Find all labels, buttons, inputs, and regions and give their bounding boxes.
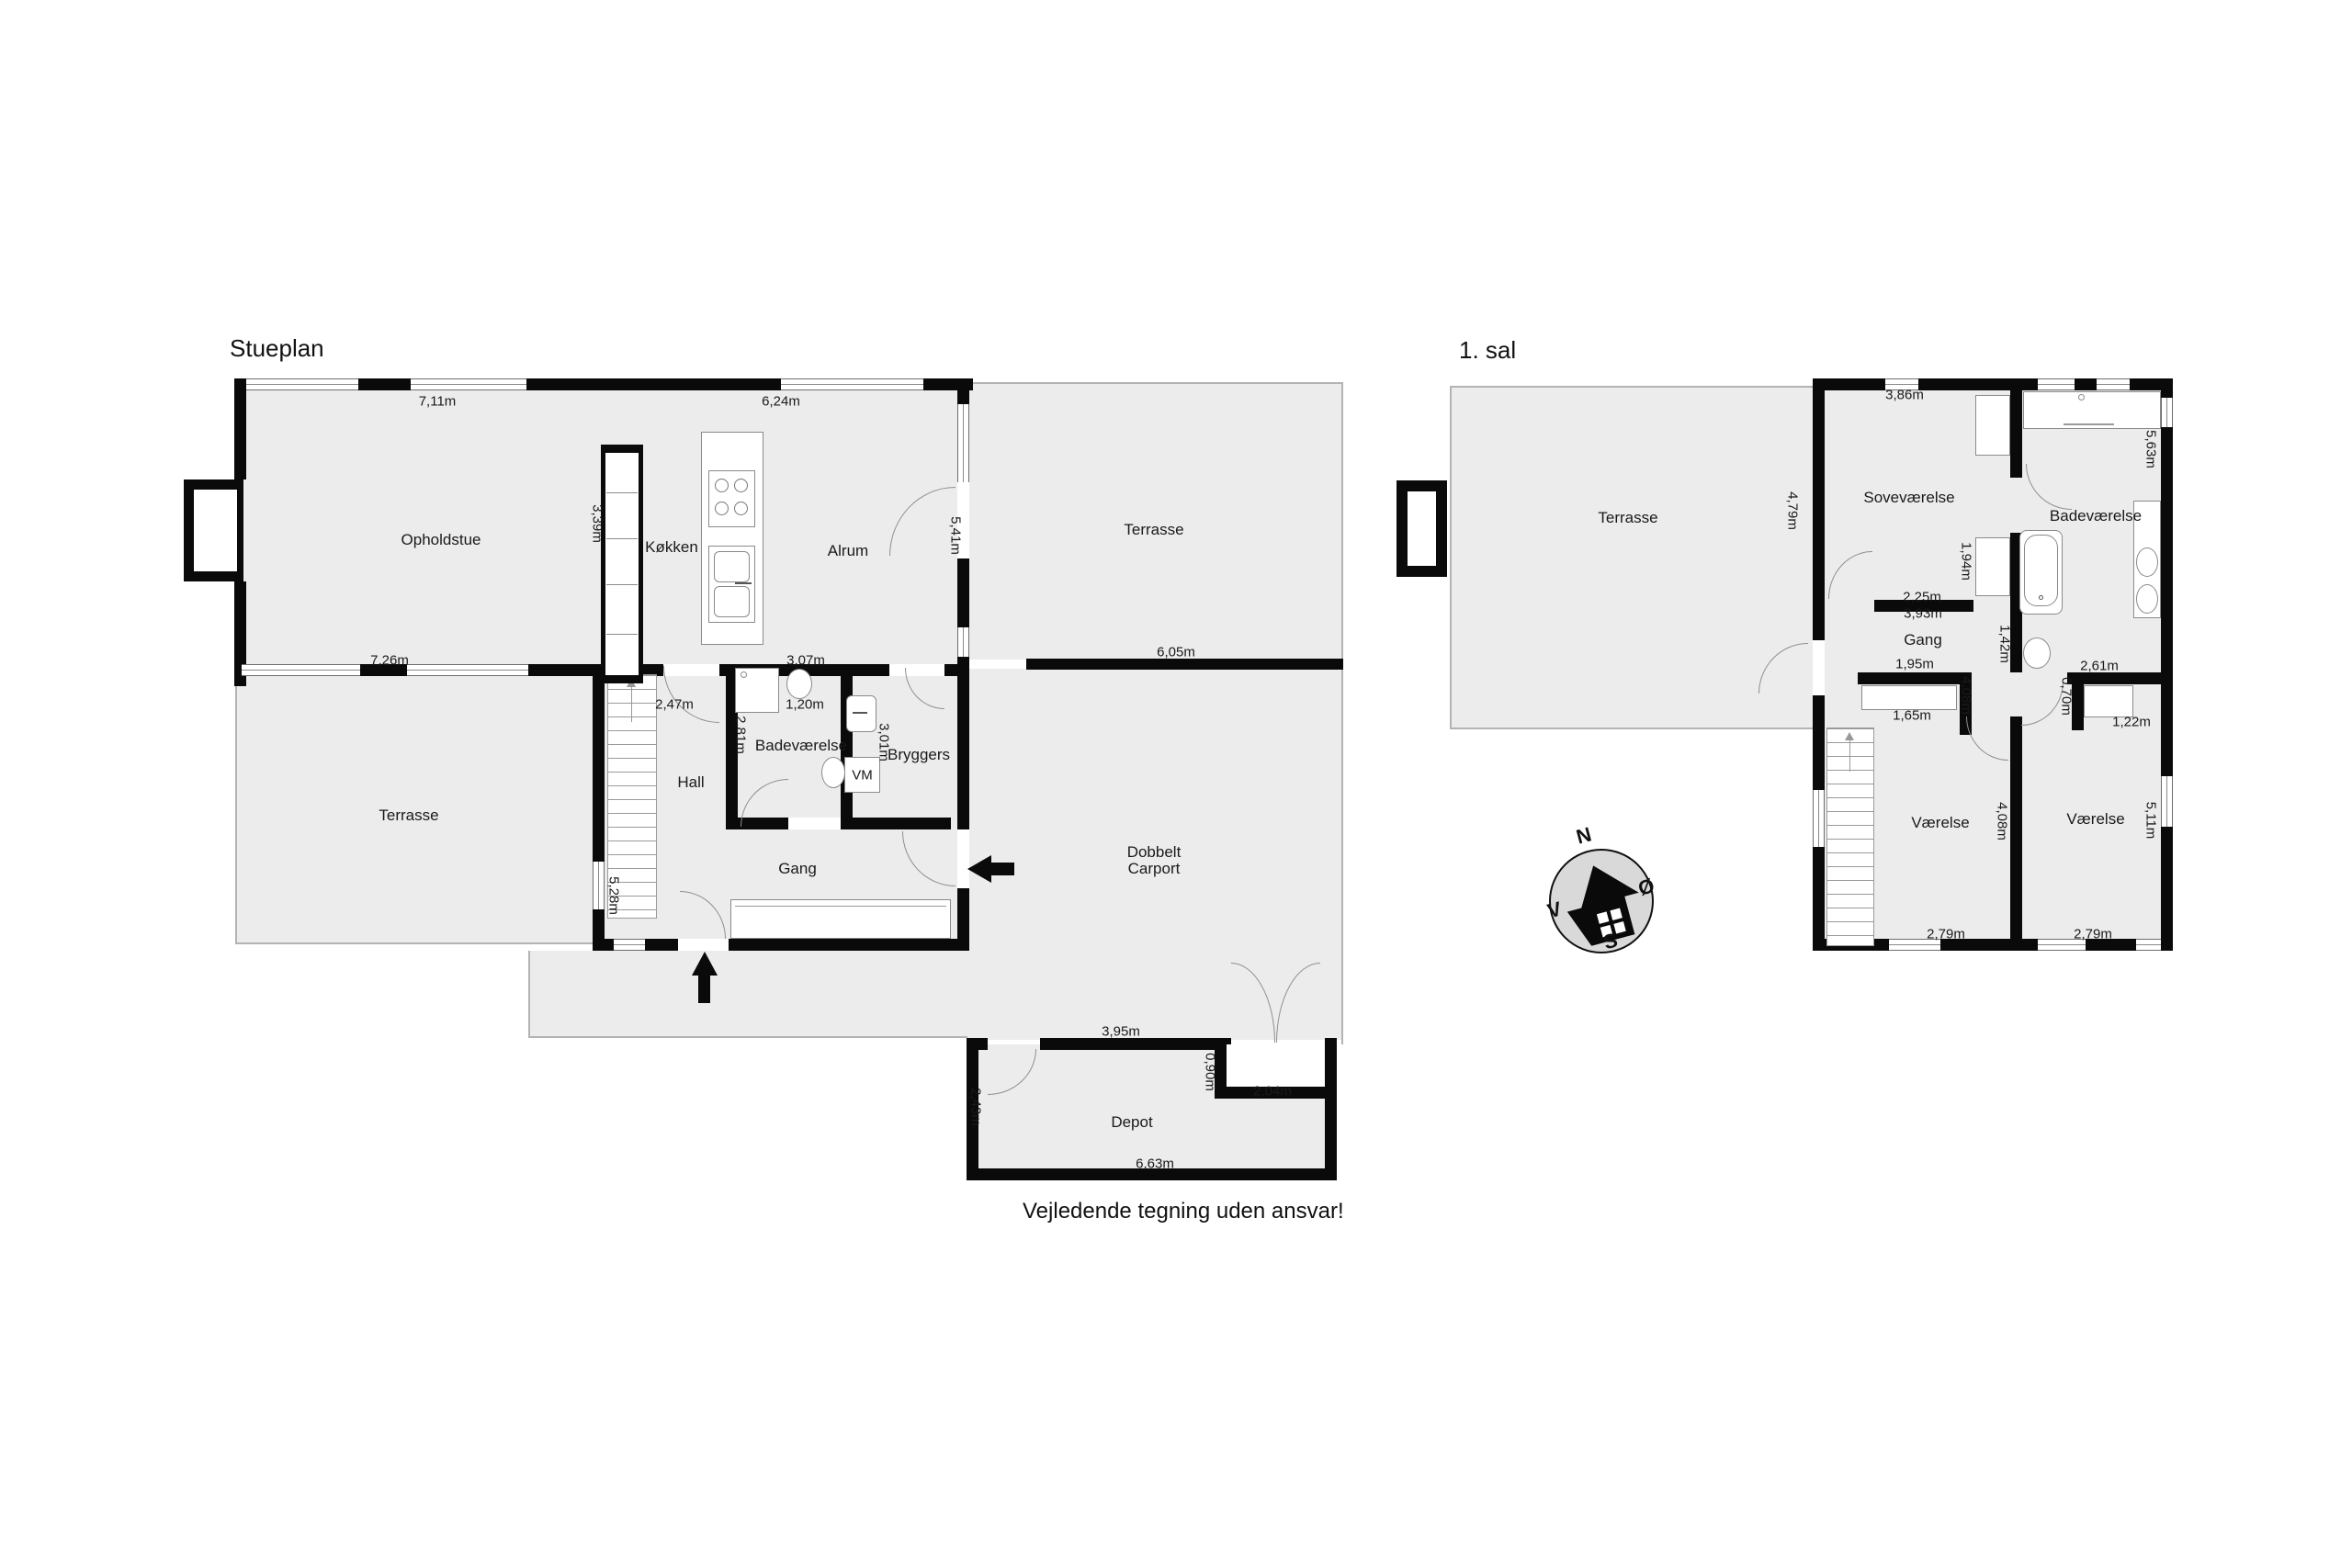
hob-burner	[715, 479, 729, 492]
wardrobe-line	[735, 906, 946, 907]
room-label-badevaerelse-1sal: Badeværelse	[2050, 507, 2142, 525]
hob-burner	[734, 502, 748, 515]
utility-sink	[846, 695, 876, 732]
room-fill-terrasse-1sal	[1450, 386, 1814, 729]
measurement-label: 0,90m	[1203, 1053, 1218, 1091]
room-label-kokken: Køkken	[645, 538, 698, 557]
measurement-label: 1,20m	[786, 697, 824, 713]
measurement-label: 4,08m	[1959, 676, 1974, 715]
room-label-bryggers: Bryggers	[888, 746, 950, 764]
bathtub-drain	[2039, 595, 2043, 600]
shower-screen-line	[2064, 423, 2114, 425]
terrasse-1sal-bottom-edge	[1450, 728, 1814, 729]
measurement-label: 6,24m	[762, 394, 800, 410]
wall-segment	[1858, 672, 1960, 684]
compass-house-window	[1610, 908, 1622, 920]
cabinet-shelf-line	[606, 584, 638, 585]
measurement-label: 3,07m	[786, 653, 825, 669]
shower-head-icon	[2078, 394, 2085, 400]
stueplan-title: Stueplan	[230, 334, 324, 363]
wall-segment	[234, 378, 246, 479]
measurement-label: 3,39m	[590, 504, 605, 543]
measurement-label: 4,08m	[1995, 802, 2010, 840]
room-label-carport-2: Carport	[1128, 860, 1181, 878]
terrasse-1sal-left-edge	[1450, 386, 1452, 729]
terrasse-left-edge	[235, 675, 237, 944]
measurement-label: 1,94m	[1959, 542, 1974, 581]
cabinet-shelf-line	[606, 634, 638, 635]
kitchen-tall-cabinet	[601, 445, 643, 683]
depot-niche	[1227, 1044, 1325, 1087]
cabinet-shelf-line	[606, 492, 638, 493]
sink	[2136, 584, 2158, 614]
window	[2038, 378, 2075, 390]
stairs	[1826, 728, 1874, 946]
window	[2161, 398, 2173, 427]
disclaimer-text: Vejledende tegning uden ansvar!	[1023, 1199, 1344, 1224]
room-label-terrasse-1sal: Terrasse	[1598, 509, 1657, 527]
sink	[2136, 547, 2158, 577]
window	[593, 862, 605, 909]
room-label-vaerelse-right: Værelse	[2066, 810, 2124, 829]
floorplan-canvas: Stueplan 1. sal	[0, 0, 2352, 1568]
hob-burner	[734, 479, 748, 492]
window	[781, 378, 923, 390]
first-floor-title: 1. sal	[1459, 336, 1516, 365]
measurement-label: 3,01m	[876, 723, 892, 761]
entrance-arrow-icon	[692, 952, 718, 976]
faucet-icon	[735, 582, 752, 584]
stairs-direction-line	[1849, 740, 1850, 772]
measurement-label: 0,70m	[2059, 677, 2075, 716]
room-label-terrasse-left: Terrasse	[379, 807, 438, 825]
door-gap	[678, 939, 729, 951]
room-label-badevaerelse: Badeværelse	[755, 737, 847, 755]
measurement-label: 1,42m	[1997, 625, 2013, 663]
wall-segment	[978, 1038, 988, 1050]
room-label-hall: Hall	[677, 773, 704, 792]
toilet	[786, 669, 812, 699]
measurement-label: 3,93m	[1904, 606, 1942, 622]
closet	[1975, 537, 2010, 596]
measurement-label: 2,04m	[1253, 1084, 1292, 1100]
measurement-label: 3,95m	[1102, 1024, 1140, 1040]
measurement-label: 1,95m	[1895, 657, 1934, 672]
window	[407, 664, 528, 676]
window	[2136, 939, 2161, 951]
measurement-label: 2,79m	[1927, 927, 1965, 942]
washing-machine-label: VM	[852, 767, 873, 783]
door-gap	[1813, 640, 1825, 695]
closet	[2084, 685, 2133, 717]
measurement-label: 2,79m	[2074, 927, 2112, 942]
wall-segment	[2161, 378, 2173, 951]
measurement-label: 1,65m	[1893, 708, 1931, 724]
measurement-label: 5,11m	[2143, 802, 2159, 840]
compass-house-window	[1613, 921, 1625, 933]
entrance-left-edge	[528, 951, 530, 1036]
room-label-opholdstue: Opholdstue	[401, 531, 481, 549]
room-label-terrasse-top: Terrasse	[1124, 521, 1183, 539]
window	[411, 378, 526, 390]
measurement-label: 5,63m	[2143, 430, 2159, 468]
shower-head-icon	[741, 671, 747, 678]
window	[957, 404, 969, 482]
wall-segment	[2010, 378, 2022, 478]
measurement-label: 5,41m	[948, 516, 964, 555]
bay-niche	[194, 490, 237, 571]
closet	[1975, 395, 2010, 456]
wall-segment	[1325, 1038, 1337, 1180]
measurement-label: 4,79m	[1785, 491, 1801, 530]
kitchen-sink-bowl	[714, 586, 750, 617]
measurement-label: 2,61m	[2080, 659, 2119, 674]
room-label-gang: Gang	[778, 860, 817, 878]
room-label-alrum: Alrum	[828, 542, 868, 560]
entrance-bottom-edge	[528, 1036, 967, 1038]
chimney-inner	[1408, 491, 1436, 566]
room-label-sovevaerelse: Soveværelse	[1863, 489, 1954, 507]
measurement-label: 2,47m	[655, 697, 694, 713]
terrasse-bottom-edge	[235, 942, 594, 944]
window	[242, 664, 360, 676]
toilet	[821, 757, 845, 788]
window	[957, 627, 969, 657]
toilet	[2023, 637, 2051, 669]
room-fill-entrance	[529, 951, 967, 1036]
terrasse-1sal-top-edge	[1450, 386, 1814, 388]
measurement-label: 3,86m	[1885, 388, 1924, 403]
wall-segment	[957, 686, 969, 951]
washing-machine: VM	[844, 757, 880, 793]
measurement-label: 7,11m	[419, 394, 457, 410]
wall-segment	[1040, 1038, 1231, 1050]
measurement-label: 6,05m	[1157, 645, 1195, 660]
window	[1813, 790, 1825, 847]
compass-house-window	[1597, 911, 1609, 923]
entrance-arrow-stem	[698, 976, 710, 1003]
window	[2097, 378, 2130, 390]
carport-entry-arrow-icon	[967, 855, 991, 883]
window	[242, 378, 358, 390]
measurement-label: 7,26m	[370, 653, 409, 669]
wall-segment	[593, 939, 967, 951]
hob-burner	[715, 502, 729, 515]
cabinet-shelf-line	[606, 538, 638, 539]
kitchen-sink-bowl	[714, 551, 750, 582]
wall-segment	[1026, 659, 1343, 670]
measurement-label: 2,25m	[1903, 590, 1941, 605]
carport-entry-arrow-stem	[990, 863, 1014, 875]
measurement-label: 2,43m	[968, 1088, 984, 1126]
room-label-vaerelse-left: Værelse	[1911, 814, 1969, 832]
room-label-carport-1: Dobbelt	[1127, 843, 1182, 862]
wall-segment	[2010, 716, 2022, 951]
compass-north-label: N	[1574, 822, 1594, 849]
window	[614, 939, 645, 951]
room-label-gang-1sal: Gang	[1904, 631, 1942, 649]
hob	[708, 470, 755, 527]
terrasse-right-edge	[1341, 382, 1343, 1044]
closet	[1861, 685, 1957, 710]
stairs-direction-line	[631, 687, 632, 722]
room-label-depot: Depot	[1111, 1113, 1152, 1132]
terrasse-top-edge	[967, 382, 1343, 384]
measurement-label: 1,22m	[2112, 715, 2151, 730]
faucet-icon	[853, 712, 867, 714]
door-gap	[788, 818, 841, 829]
measurement-label: 5,28m	[606, 876, 622, 915]
stairs-direction-arrow	[1845, 732, 1854, 740]
window	[2161, 776, 2173, 827]
measurement-label: 6,63m	[1136, 1156, 1174, 1172]
measurement-label: 2,81m	[733, 716, 749, 754]
